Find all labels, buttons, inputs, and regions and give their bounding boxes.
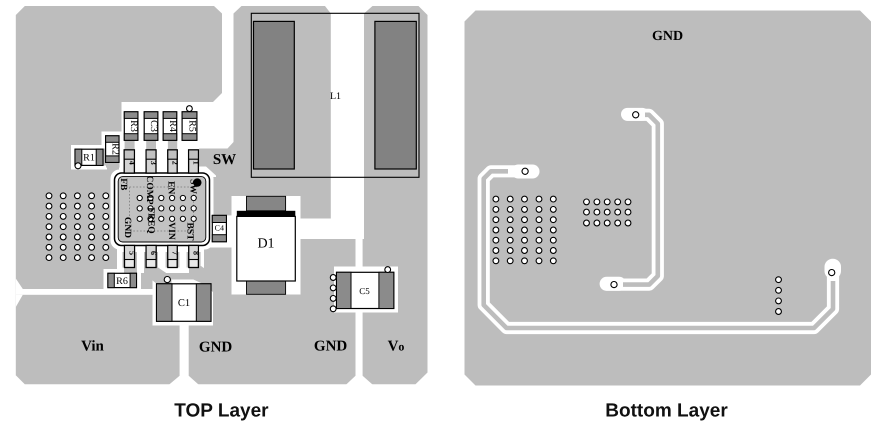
svg-text:1: 1	[192, 161, 201, 165]
svg-text:R3: R3	[128, 120, 139, 132]
svg-text:C3: C3	[148, 120, 159, 132]
svg-text:GND: GND	[314, 339, 348, 355]
svg-text:L1: L1	[330, 91, 341, 102]
svg-text:5: 5	[128, 251, 137, 255]
svg-text:Bottom Layer: Bottom Layer	[605, 401, 728, 422]
svg-text:BST: BST	[185, 223, 195, 242]
svg-text:SW: SW	[188, 179, 198, 194]
svg-text:R5: R5	[187, 120, 198, 132]
svg-text:3: 3	[149, 161, 158, 165]
svg-text:Vin: Vin	[81, 338, 104, 354]
svg-text:8: 8	[192, 251, 201, 255]
svg-text:7: 7	[171, 251, 180, 255]
svg-text:R4: R4	[167, 120, 178, 132]
svg-text:Vo: Vo	[388, 339, 405, 355]
svg-text:R2: R2	[109, 143, 120, 155]
svg-text:D1: D1	[257, 237, 274, 252]
svg-text:C1: C1	[178, 298, 190, 309]
svg-text:4: 4	[127, 161, 136, 165]
svg-text:GND: GND	[199, 339, 233, 355]
svg-text:R6: R6	[116, 276, 128, 287]
svg-text:COMP: COMP	[144, 175, 154, 204]
svg-text:2: 2	[171, 161, 180, 165]
svg-text:6: 6	[149, 251, 158, 255]
svg-text:GND: GND	[652, 29, 683, 44]
svg-text:VIN: VIN	[166, 222, 176, 240]
svg-text:EN: EN	[166, 181, 176, 194]
svg-text:FB: FB	[118, 178, 128, 191]
svg-text:SW: SW	[213, 152, 236, 168]
svg-text:TOP Layer: TOP Layer	[174, 401, 269, 422]
svg-text:R1: R1	[83, 153, 95, 164]
svg-text:C4: C4	[215, 224, 224, 233]
svg-text:GND: GND	[122, 217, 132, 238]
svg-text:FREQ: FREQ	[145, 207, 155, 233]
svg-text:C5: C5	[359, 286, 370, 296]
